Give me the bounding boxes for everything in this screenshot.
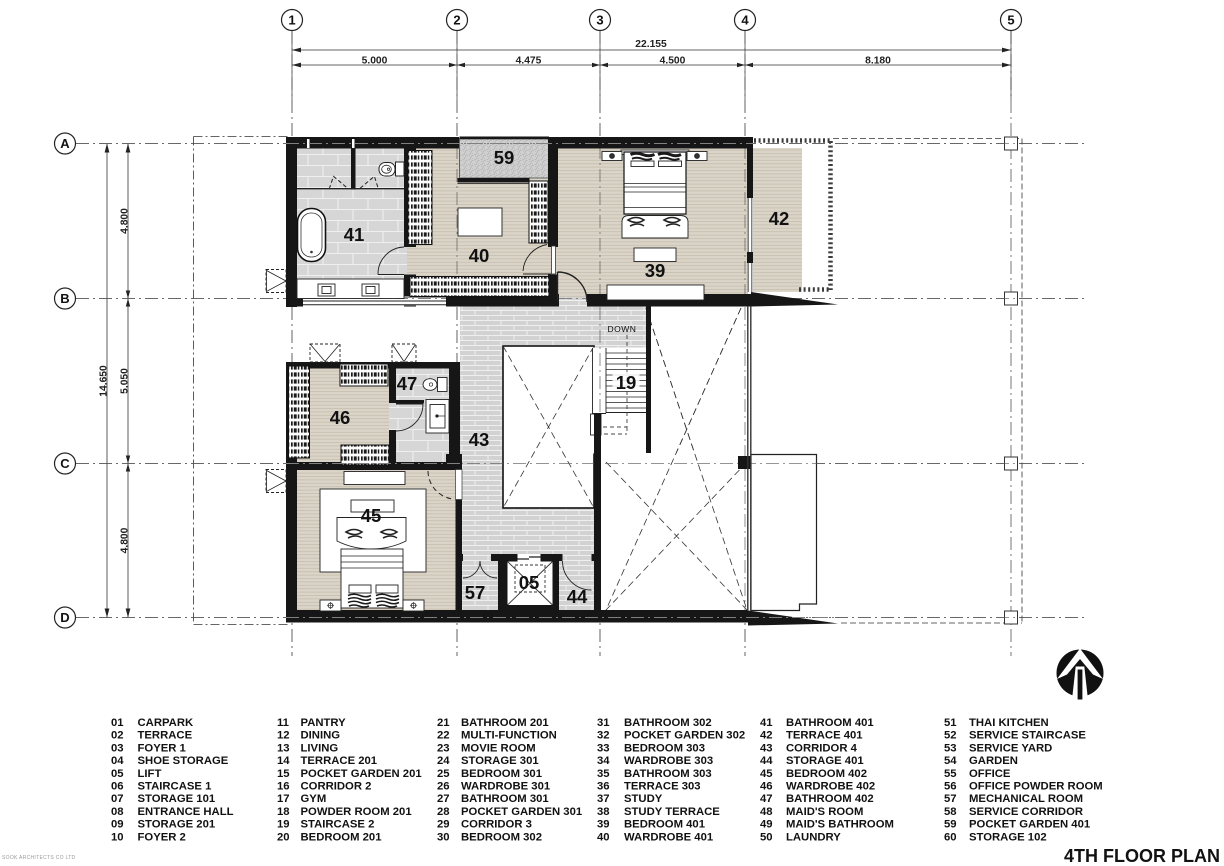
svg-text:22.155: 22.155 — [635, 39, 667, 50]
svg-text:11121314151617181920: 11121314151617181920 — [277, 717, 290, 843]
svg-text:4TH FLOOR PLAN: 4TH FLOOR PLAN — [1064, 846, 1220, 866]
svg-text:5.050: 5.050 — [120, 368, 131, 394]
svg-text:4.500: 4.500 — [660, 56, 686, 67]
svg-text:SOOK ARCHITECTS CO LTD: SOOK ARCHITECTS CO LTD — [2, 855, 76, 861]
svg-text:41424344454647484950: 41424344454647484950 — [760, 717, 773, 843]
svg-text:21222324252627282930: 21222324252627282930 — [437, 717, 450, 843]
svg-text:4.800: 4.800 — [120, 527, 131, 553]
svg-text:01020304050607080910: 01020304050607080910 — [111, 717, 124, 843]
svg-text:4.800: 4.800 — [120, 208, 131, 234]
svg-text:42: 42 — [769, 208, 790, 229]
svg-text:46: 46 — [330, 407, 351, 428]
svg-text:A: A — [60, 136, 70, 151]
svg-text:41: 41 — [344, 224, 365, 245]
svg-text:C: C — [60, 456, 70, 471]
svg-text:3: 3 — [596, 13, 603, 28]
svg-text:44: 44 — [567, 586, 588, 607]
svg-text:5: 5 — [1007, 13, 1014, 28]
svg-text:57: 57 — [465, 582, 486, 603]
svg-text:43: 43 — [469, 429, 490, 450]
svg-text:1: 1 — [288, 13, 295, 28]
svg-text:47: 47 — [397, 373, 418, 394]
svg-text:39: 39 — [645, 260, 666, 281]
svg-text:D: D — [60, 610, 69, 625]
svg-text:B: B — [60, 291, 69, 306]
svg-text:4: 4 — [741, 13, 749, 28]
svg-text:2: 2 — [453, 13, 460, 28]
svg-text:31323334353637383940: 31323334353637383940 — [597, 717, 610, 843]
svg-text:45: 45 — [361, 505, 382, 526]
svg-text:4.475: 4.475 — [516, 56, 542, 67]
svg-text:19: 19 — [616, 372, 637, 393]
svg-text:40: 40 — [469, 245, 490, 266]
svg-text:8.180: 8.180 — [865, 56, 891, 67]
svg-text:5.000: 5.000 — [362, 56, 388, 67]
svg-text:59: 59 — [494, 147, 515, 168]
svg-text:DOWN: DOWN — [608, 324, 637, 334]
svg-text:05: 05 — [519, 572, 540, 593]
svg-text:14.650: 14.650 — [99, 365, 110, 397]
svg-text:51525354555657585960: 51525354555657585960 — [944, 717, 957, 843]
svg-text:THAI KITCHENSERVICE STAIRCASES: THAI KITCHENSERVICE STAIRCASESERVICE YAR… — [969, 717, 1103, 843]
